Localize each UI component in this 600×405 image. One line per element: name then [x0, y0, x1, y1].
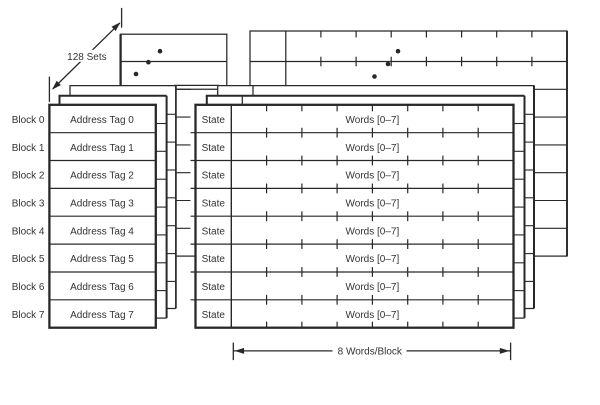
svg-text:Address Tag 0: Address Tag 0	[70, 115, 134, 126]
svg-text:Block 2: Block 2	[12, 171, 45, 182]
svg-text:Address Tag 5: Address Tag 5	[70, 254, 134, 265]
svg-text:Address Tag 6: Address Tag 6	[70, 282, 134, 293]
svg-text:Words [0–7]: Words [0–7]	[346, 199, 400, 210]
svg-text:8 Words/Block: 8 Words/Block	[338, 347, 403, 358]
svg-text:Words [0–7]: Words [0–7]	[346, 171, 400, 182]
svg-text:Words [0–7]: Words [0–7]	[346, 254, 400, 265]
svg-text:Address Tag 4: Address Tag 4	[70, 226, 134, 237]
svg-text:State: State	[202, 310, 226, 321]
svg-text:Block 5: Block 5	[12, 254, 45, 265]
svg-text:128 Sets: 128 Sets	[67, 52, 106, 63]
svg-text:Address Tag 1: Address Tag 1	[70, 143, 134, 154]
svg-text:Address Tag 7: Address Tag 7	[70, 310, 134, 321]
svg-text:State: State	[202, 143, 226, 154]
svg-text:Block 7: Block 7	[12, 310, 45, 321]
svg-text:Block 0: Block 0	[12, 115, 45, 126]
svg-text:Address Tag 3: Address Tag 3	[70, 199, 134, 210]
svg-text:State: State	[202, 254, 226, 265]
svg-text:Block 1: Block 1	[12, 143, 45, 154]
svg-text:Block 3: Block 3	[12, 199, 45, 210]
svg-text:State: State	[202, 199, 226, 210]
svg-text:Words [0–7]: Words [0–7]	[346, 282, 400, 293]
svg-text:Words [0–7]: Words [0–7]	[346, 115, 400, 126]
svg-text:Words [0–7]: Words [0–7]	[346, 310, 400, 321]
svg-text:State: State	[202, 226, 226, 237]
svg-text:Block 4: Block 4	[12, 226, 45, 237]
svg-text:State: State	[202, 115, 226, 126]
svg-text:State: State	[202, 282, 226, 293]
svg-text:Block 6: Block 6	[12, 282, 45, 293]
svg-text:State: State	[202, 171, 226, 182]
svg-text:Words [0–7]: Words [0–7]	[346, 143, 400, 154]
svg-text:Address Tag 2: Address Tag 2	[70, 171, 134, 182]
svg-text:Words [0–7]: Words [0–7]	[346, 226, 400, 237]
